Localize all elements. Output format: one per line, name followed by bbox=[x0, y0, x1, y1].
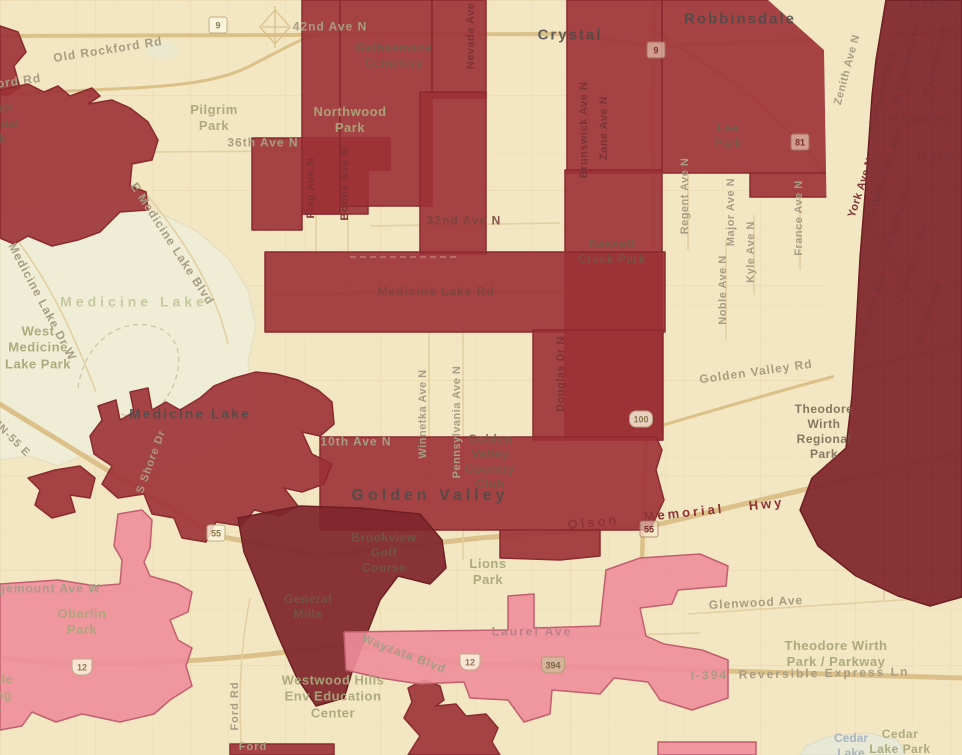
region-bottom-strip[interactable] bbox=[230, 744, 334, 755]
region-gv-band-bulge[interactable] bbox=[500, 530, 600, 560]
small-pond bbox=[146, 41, 178, 59]
map-canvas[interactable]: CrystalRobbinsdaleMedicine LakeGolden Va… bbox=[0, 0, 962, 755]
region-central-a[interactable] bbox=[340, 0, 432, 206]
region-medicine-lake-rd-band[interactable] bbox=[265, 252, 665, 332]
region-central-d[interactable] bbox=[420, 92, 486, 254]
map-graphics bbox=[0, 0, 962, 755]
region-central-c[interactable] bbox=[432, 0, 486, 98]
region-central-b[interactable] bbox=[302, 0, 340, 214]
region-bassett-south[interactable] bbox=[533, 330, 663, 440]
region-crystal-west[interactable] bbox=[567, 0, 662, 173]
region-pink-bottom-arm[interactable] bbox=[658, 742, 756, 755]
region-lee-tongue[interactable] bbox=[750, 173, 832, 197]
